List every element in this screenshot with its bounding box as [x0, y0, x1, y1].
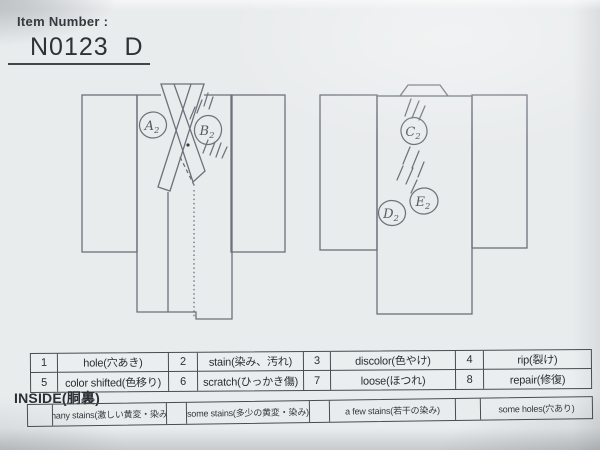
inside-option-label: some holes(穴あり): [481, 397, 592, 420]
kimono-front-diagram: A2 B2: [82, 84, 285, 319]
code-label-cell: repair(修復): [484, 369, 591, 389]
defect-mark-label-a2: A2: [144, 119, 160, 136]
inside-option-label: many stains(激しい黄変・染み): [53, 403, 167, 426]
front-collar-hidden-dashed-line: [180, 157, 195, 187]
code-label-cell: stain(染み、汚れ): [198, 352, 304, 372]
back-collar: [400, 85, 448, 96]
hatch-marks-back-middle: [397, 147, 424, 193]
back-right-sleeve: [472, 95, 527, 248]
defect-mark-label-b2: B2: [199, 124, 215, 141]
back-left-sleeve: [320, 95, 377, 250]
inspection-sheet: Item Number : N0123 D A2 B2: [0, 0, 600, 450]
code-number-cell: 3: [304, 352, 331, 371]
code-number-cell: 1: [31, 354, 58, 373]
defect-code-table: 1 hole(穴あき) 2 stain(染み、汚れ) 3 discolor(色や…: [30, 349, 592, 393]
inside-option-label: some stains(多少の黄変・染み): [187, 401, 310, 424]
kimono-back-diagram: C2 D2 E2: [320, 85, 527, 314]
inside-checkbox-cell: [456, 399, 481, 420]
front-collar-band-left: [161, 84, 205, 182]
defect-mark-label-c2: C2: [405, 125, 420, 142]
hatch-marks-front-lower: [203, 140, 227, 158]
hatch-marks-back-upper: [405, 99, 425, 120]
inside-checkbox-cell: [167, 403, 187, 424]
code-number-cell: 8: [456, 370, 484, 389]
code-label-cell: rip(裂け): [484, 350, 591, 370]
code-label-cell: loose(ほつれ): [331, 370, 456, 390]
pen-dot: [186, 143, 189, 146]
front-left-sleeve: [82, 95, 137, 252]
defect-mark-label-e2: E2: [415, 195, 431, 212]
code-label-cell: hole(穴あき): [58, 353, 169, 373]
inside-option-label: a few stains(若干の染み): [330, 399, 456, 422]
front-right-sleeve: [231, 95, 285, 252]
code-number-cell: 2: [169, 353, 198, 372]
inside-checkbox-cell: [28, 405, 53, 426]
inside-checkbox-cell: [310, 401, 330, 422]
code-number-cell: 6: [169, 372, 198, 391]
code-number-cell: 4: [456, 351, 484, 370]
defect-mark-label-d2: D2: [382, 207, 399, 224]
front-collar-band-right: [158, 84, 204, 191]
code-label-cell: discolor(色やけ): [331, 351, 456, 371]
code-number-cell: 7: [304, 371, 331, 390]
code-label-cell: scratch(ひっかき傷): [198, 371, 304, 391]
